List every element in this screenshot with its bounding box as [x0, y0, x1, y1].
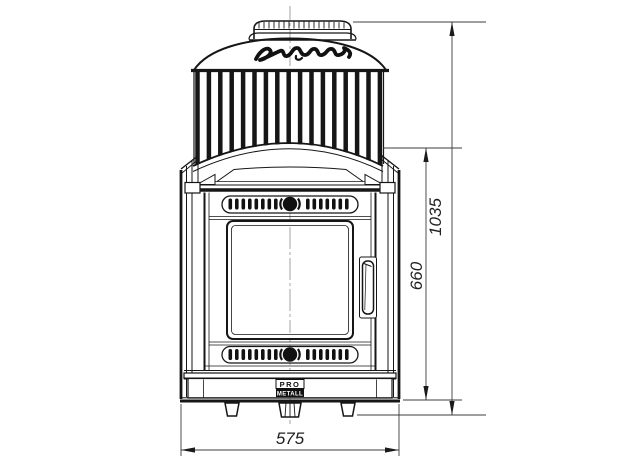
door-handle [360, 257, 377, 318]
lower-vent-grille [222, 347, 358, 364]
prometall-logo-top-text: PRO [280, 380, 301, 389]
lower-shelf-rail [184, 371, 396, 379]
lower-vent-knob [283, 347, 297, 361]
collar-ribs [259, 22, 344, 29]
technical-drawing-canvas: PRO METALL 1035 [0, 0, 624, 460]
prometall-logo: PRO METALL [276, 380, 304, 398]
upper-vent-grille [222, 196, 358, 213]
prometall-logo-bottom-text: METALL [277, 391, 303, 397]
feet [225, 403, 355, 417]
door-glass [227, 221, 353, 339]
brand-script-logo [256, 48, 350, 60]
upper-vent-knob [283, 197, 297, 211]
dim-value-firebox-height: 660 [407, 261, 426, 290]
chimney-collar [249, 21, 356, 40]
dim-value-overall-height: 1035 [426, 198, 445, 236]
base-panel: PRO METALL [188, 379, 392, 399]
sauna-stove-front-view-drawing: PRO METALL 1035 [0, 0, 624, 460]
dim-value-width: 575 [276, 429, 305, 448]
foot-right [341, 403, 355, 416]
foot-left [225, 403, 239, 416]
